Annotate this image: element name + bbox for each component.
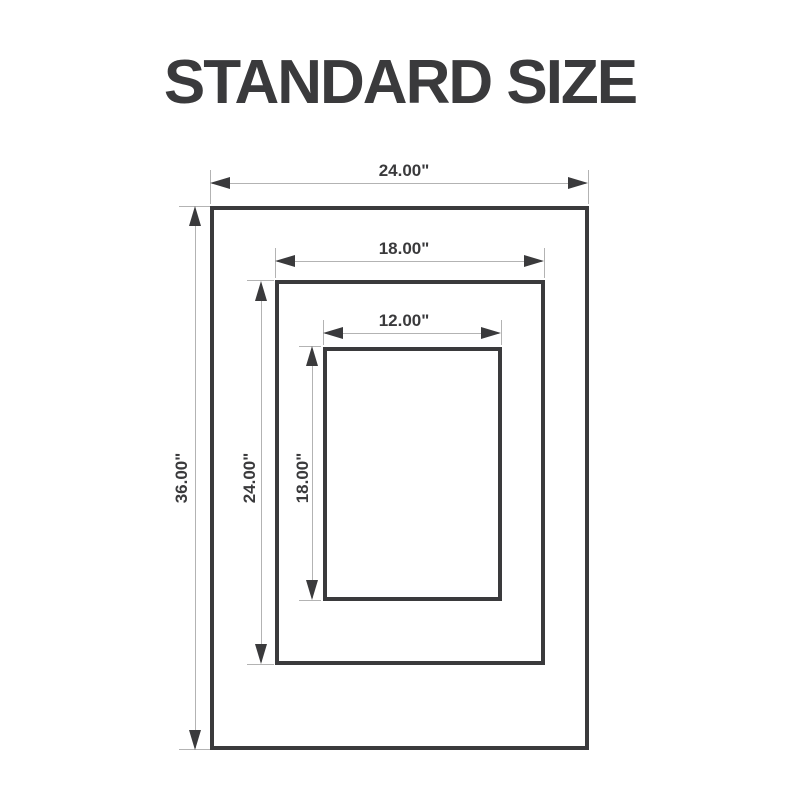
- arrow-left-icon: [275, 255, 295, 267]
- arrow-down-icon: [306, 580, 318, 600]
- arrow-left-icon: [210, 177, 230, 189]
- arrow-left-icon: [323, 327, 343, 339]
- dimension-line: [212, 183, 586, 184]
- dimension-line: [195, 209, 196, 748]
- extension-line: [544, 248, 545, 278]
- arrow-down-icon: [189, 730, 201, 750]
- page-title: STANDARD SIZE: [0, 52, 800, 114]
- dimension-label-outer-height: 36.00": [173, 453, 191, 504]
- extension-line: [299, 600, 321, 601]
- dimension-line: [325, 333, 499, 334]
- arrow-up-icon: [189, 206, 201, 226]
- dimension-line: [261, 284, 262, 662]
- extension-line: [247, 664, 274, 665]
- dimension-label-outer-width: 24.00": [379, 162, 430, 180]
- dimension-label-inner-height: 18.00": [294, 453, 312, 504]
- arrow-right-icon: [524, 255, 544, 267]
- inner-size-rectangle: [323, 347, 502, 601]
- arrow-up-icon: [306, 346, 318, 366]
- arrow-right-icon: [481, 327, 501, 339]
- dimension-label-inner-width: 12.00": [379, 312, 430, 330]
- dimension-label-middle-height: 24.00": [241, 453, 259, 504]
- dimension-label-middle-width: 18.00": [379, 240, 430, 258]
- arrow-right-icon: [568, 177, 588, 189]
- dimension-line: [277, 261, 542, 262]
- dimension-line: [312, 349, 313, 598]
- arrow-down-icon: [255, 644, 267, 664]
- standard-size-diagram: STANDARD SIZE 24.00" 18.00" 12.00": [0, 0, 800, 800]
- extension-line: [588, 170, 589, 204]
- arrow-up-icon: [255, 281, 267, 301]
- extension-line: [501, 320, 502, 345]
